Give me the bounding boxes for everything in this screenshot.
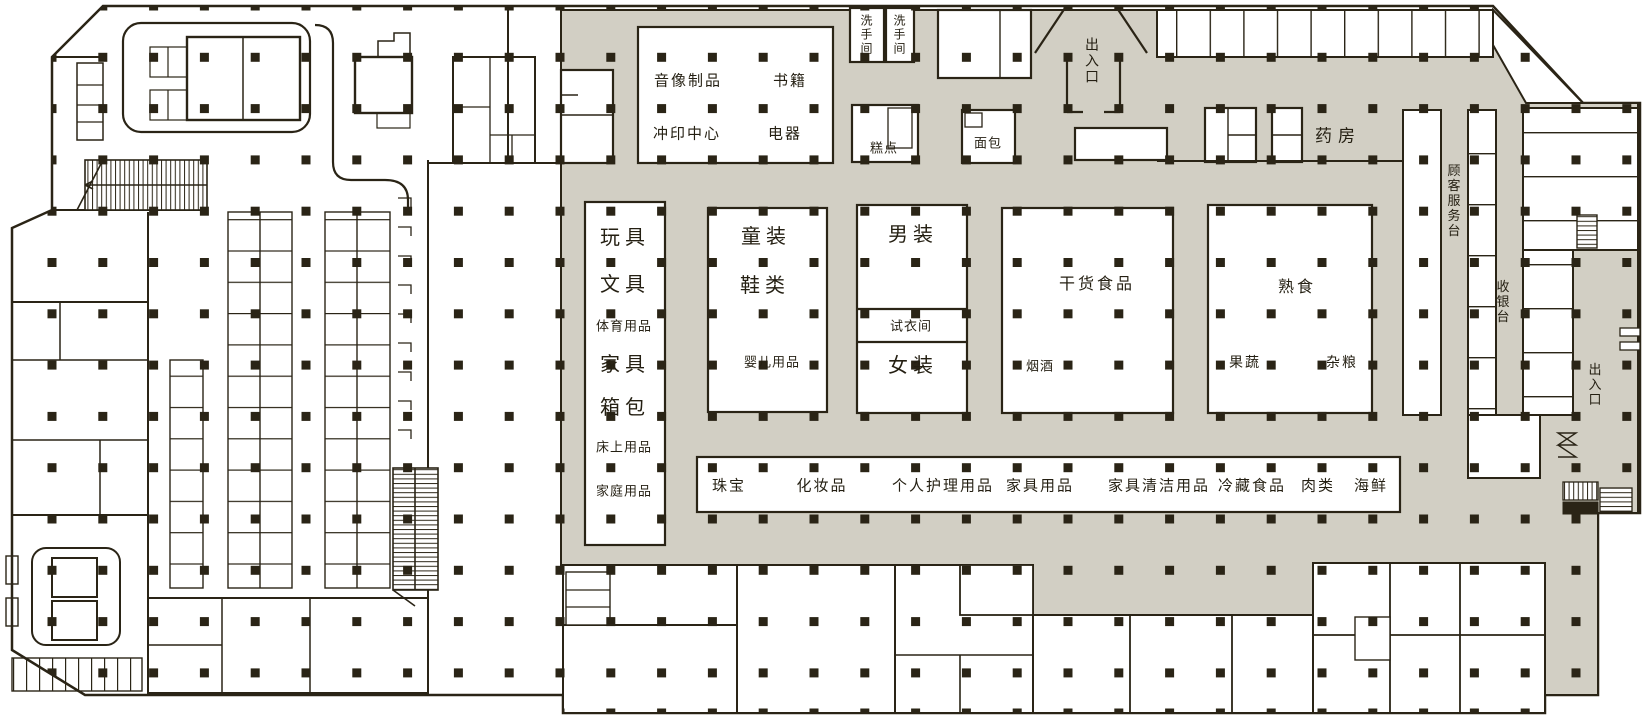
area-label-grains: 杂粮: [1326, 356, 1358, 370]
area-label-bedding: 床上用品: [596, 442, 652, 455]
area-label-entrance-right: 出入口: [1587, 363, 1600, 408]
area-label-toys: 玩具: [600, 227, 650, 247]
area-label-books: 书籍: [773, 74, 807, 89]
area-label-deli: 熟食: [1278, 279, 1316, 295]
stair-secondary-icon: [393, 468, 438, 606]
area-label-bags: 箱包: [600, 397, 650, 417]
area-label-restroom-1: 洗手间: [860, 14, 872, 56]
area-label-household: 家庭用品: [596, 486, 652, 499]
area-label-furniture-goods: 家具用品: [1006, 479, 1074, 494]
area-label-pastry: 糕点: [870, 143, 898, 156]
area-label-cosmetics: 化妆品: [796, 479, 847, 494]
area-label-personal-care: 个人护理用品: [892, 479, 994, 494]
kiosk: [1075, 128, 1167, 160]
area-label-shoes: 鞋类: [740, 275, 790, 295]
area-label-appliances: 电器: [768, 127, 802, 142]
area-label-customer-service: 顾客服务台: [1446, 164, 1459, 239]
area-label-photo-center: 冲印中心: [653, 127, 721, 142]
area-label-stationery: 文具: [600, 274, 650, 294]
island-dryfood: [1002, 208, 1173, 413]
area-label-jewelry: 珠宝: [712, 479, 746, 494]
stair-main-icon: [77, 160, 207, 210]
area-label-tobacco-liquor: 烟酒: [1026, 361, 1054, 374]
area-label-sports-goods: 体育用品: [596, 321, 652, 334]
area-label-furniture: 家具: [600, 354, 650, 374]
area-label-cleaning-goods: 家具清洁用品: [1108, 479, 1210, 494]
area-label-av-products: 音像制品: [654, 74, 722, 89]
area-label-bread: 面包: [974, 138, 1002, 151]
area-label-produce: 果蔬: [1229, 356, 1261, 370]
area-label-fitting-room: 试衣间: [890, 321, 932, 334]
floor-plan: 洗手间 洗手间 出入口 药房 音像制品 书籍 冲印中心 电器 糕点 面包 玩具 …: [0, 0, 1646, 722]
door-icon: [1620, 328, 1640, 336]
area-label-mens-wear: 男装: [888, 224, 938, 244]
area-label-entrance-top: 出入口: [1084, 37, 1098, 85]
area-label-cashier: 收银台: [1495, 280, 1508, 325]
area-label-meat: 肉类: [1301, 479, 1335, 494]
area-label-restroom-2: 洗手间: [893, 14, 905, 56]
island-deli: [1208, 205, 1372, 413]
floor-plan-drawing: [0, 0, 1646, 722]
area-label-pharmacy: 药房: [1315, 129, 1361, 146]
door-icon: [1620, 342, 1640, 350]
area-label-kids-wear: 童装: [741, 226, 791, 246]
area-label-baby-products: 婴儿用品: [744, 357, 800, 370]
area-label-womens-wear: 女装: [888, 355, 938, 375]
room-av-books: [638, 27, 833, 163]
area-label-chilled-food: 冷藏食品: [1218, 479, 1286, 494]
area-label-seafood: 海鲜: [1354, 479, 1388, 494]
area-label-dry-food: 干货食品: [1059, 276, 1135, 292]
